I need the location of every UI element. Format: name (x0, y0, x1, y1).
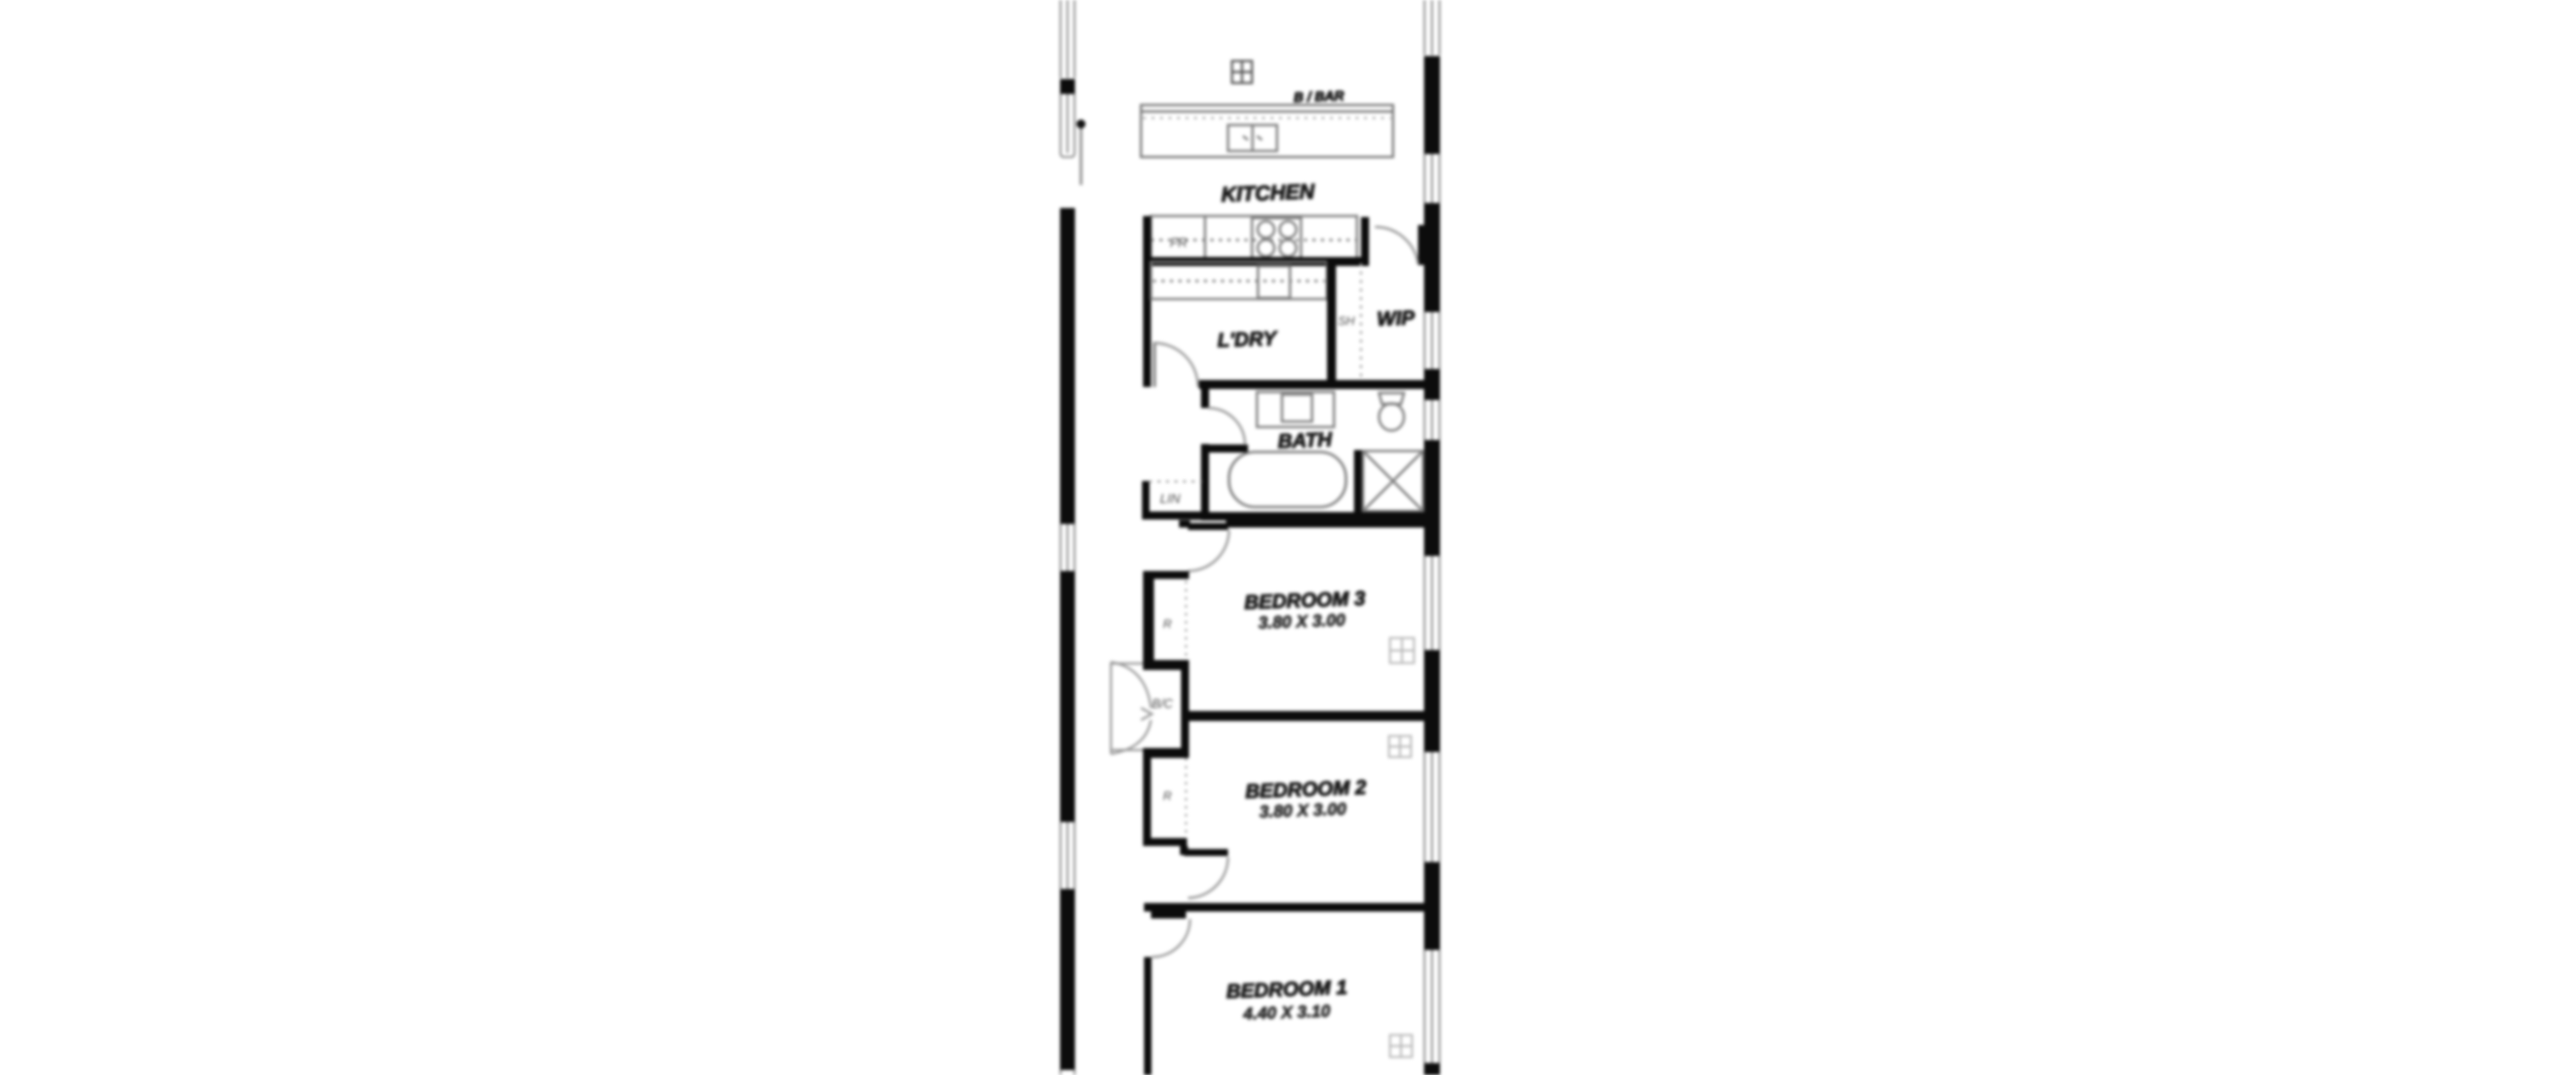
svg-text:KITCHEN: KITCHEN (1221, 180, 1316, 206)
svg-text:B/C: B/C (1152, 697, 1174, 711)
svg-text:BEDROOM 1: BEDROOM 1 (1226, 977, 1348, 1003)
svg-text:FR: FR (1170, 235, 1187, 250)
svg-text:3.80 X 3.00: 3.80 X 3.00 (1259, 799, 1347, 821)
svg-text:BEDROOM 3: BEDROOM 3 (1244, 588, 1366, 614)
svg-text:R: R (1163, 617, 1172, 631)
svg-text:3.80 X 3.00: 3.80 X 3.00 (1258, 610, 1346, 632)
svg-text:R: R (1163, 789, 1172, 803)
svg-text:SH: SH (1338, 314, 1355, 328)
svg-text:B / BAR: B / BAR (1293, 88, 1344, 105)
svg-text:LIN: LIN (1160, 491, 1181, 506)
svg-text:BEDROOM 2: BEDROOM 2 (1245, 777, 1367, 803)
svg-text:L'DRY: L'DRY (1217, 328, 1278, 352)
svg-text:WIP: WIP (1377, 307, 1416, 330)
svg-text:4.40 X 3.10: 4.40 X 3.10 (1242, 1001, 1331, 1023)
svg-text:BATH: BATH (1277, 429, 1332, 453)
